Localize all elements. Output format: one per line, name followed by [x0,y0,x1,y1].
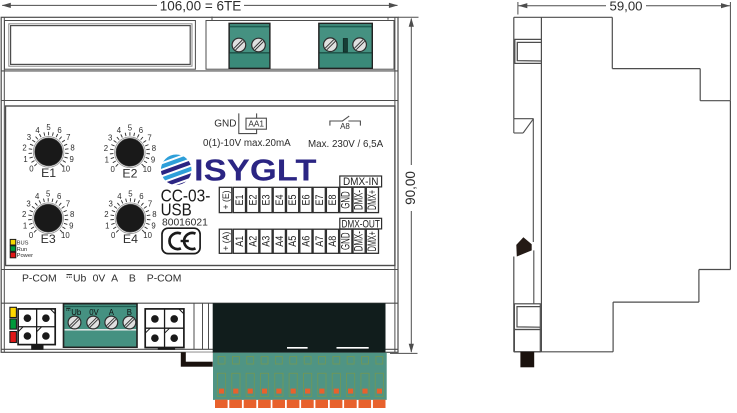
svg-text:3: 3 [109,200,113,209]
svg-text:1: 1 [23,155,27,164]
svg-text:B: B [129,274,136,285]
svg-text:0: 0 [111,165,116,174]
svg-text:2: 2 [22,144,26,153]
svg-text:6: 6 [139,192,143,201]
svg-text:BUS: BUS [17,240,29,246]
svg-text:GND: GND [339,191,352,209]
svg-text:+ (E): + (E) [221,190,231,209]
svg-text:+ (A): + (A) [221,232,231,251]
svg-text:DMX+: DMX+ [366,190,379,210]
svg-text:P-COM: P-COM [22,274,57,285]
svg-text:0(1)-10V max.20mA: 0(1)-10V max.20mA [203,138,291,149]
svg-text:10: 10 [143,165,152,174]
svg-text:4: 4 [35,126,40,135]
svg-text:E6: E6 [301,194,313,205]
svg-text:8: 8 [70,144,74,153]
svg-text:7: 7 [148,200,152,209]
svg-text:A5: A5 [287,236,299,247]
svg-text:Max. 230V / 6,5A: Max. 230V / 6,5A [308,139,384,150]
svg-text:5: 5 [46,123,51,132]
svg-text:A1: A1 [234,236,246,247]
svg-text:3: 3 [108,134,112,143]
svg-text:7: 7 [66,200,70,209]
svg-text:90,00: 90,00 [403,171,418,205]
svg-text:E7: E7 [314,194,326,205]
svg-text:B: B [127,308,132,317]
svg-text:GND: GND [339,232,352,250]
svg-text:5: 5 [128,124,133,133]
svg-text:9: 9 [151,221,155,230]
svg-text:5: 5 [128,190,133,199]
svg-text:A2: A2 [247,236,259,247]
svg-text:A: A [109,308,115,317]
svg-text:ISYGLT: ISYGLT [194,152,317,187]
svg-text:E1: E1 [234,194,246,205]
svg-text:5: 5 [46,190,51,199]
svg-text:106,00 = 6TE: 106,00 = 6TE [160,0,241,13]
svg-text:2: 2 [22,210,26,219]
svg-text:1: 1 [105,155,109,164]
svg-text:DMX-: DMX- [353,190,366,210]
svg-text:A8: A8 [327,236,339,247]
svg-text:3: 3 [26,200,30,209]
svg-text:A6: A6 [301,236,313,247]
svg-text:0: 0 [29,231,34,240]
svg-text:USB: USB [161,199,192,219]
svg-text:10: 10 [143,231,152,240]
svg-text:A: A [111,274,118,285]
svg-text:E1: E1 [41,166,56,180]
svg-text:4: 4 [35,192,40,201]
svg-text:0: 0 [29,165,34,174]
svg-text:4: 4 [117,126,122,135]
svg-text:0V: 0V [89,308,99,317]
svg-text:2: 2 [104,144,108,153]
svg-text:A7: A7 [314,236,326,247]
svg-text:E3: E3 [261,194,273,205]
svg-text:3: 3 [27,133,31,142]
svg-text:4: 4 [117,192,122,201]
svg-text:DMX-: DMX- [353,231,366,251]
svg-text:9: 9 [69,221,73,230]
svg-text:A3: A3 [261,236,273,247]
svg-text:10: 10 [61,165,70,174]
svg-text:8: 8 [152,144,156,153]
svg-text:1: 1 [23,221,27,230]
svg-text:E2: E2 [122,166,137,180]
svg-text:1: 1 [105,221,109,230]
svg-text:E4: E4 [123,232,138,246]
svg-text:0: 0 [111,231,116,240]
svg-text:6: 6 [57,126,61,135]
svg-text:AA1: AA1 [248,119,264,129]
svg-text:Power: Power [17,253,34,259]
svg-text:DMX-OUT: DMX-OUT [341,218,380,230]
svg-text:6: 6 [139,126,143,135]
svg-text:8: 8 [152,210,156,219]
svg-text:0V: 0V [93,274,106,285]
svg-text:10: 10 [61,231,70,240]
svg-text:Run: Run [17,247,28,253]
svg-text:80016021: 80016021 [162,217,208,228]
svg-text:2: 2 [104,210,108,219]
svg-text:7: 7 [66,133,70,142]
svg-text:E8: E8 [327,194,339,205]
svg-text:9: 9 [151,155,155,164]
svg-text:P-COM: P-COM [147,274,182,285]
svg-text:E2: E2 [247,194,259,205]
svg-text:59,00: 59,00 [609,0,642,14]
svg-text:6: 6 [57,192,61,201]
svg-text:A4: A4 [274,236,286,247]
svg-text:9: 9 [70,155,74,164]
svg-text:7: 7 [147,134,151,143]
svg-text:A8: A8 [340,122,350,131]
svg-text:E4: E4 [274,194,286,205]
svg-text:E3: E3 [41,232,56,246]
svg-text:DMX-IN: DMX-IN [343,176,379,188]
svg-text:8: 8 [70,210,74,219]
svg-text:Ub: Ub [71,308,82,317]
svg-text:E5: E5 [287,194,299,205]
svg-text:Ub: Ub [73,274,87,285]
svg-text:GND: GND [214,118,236,129]
svg-text:DMX+: DMX+ [366,231,379,251]
